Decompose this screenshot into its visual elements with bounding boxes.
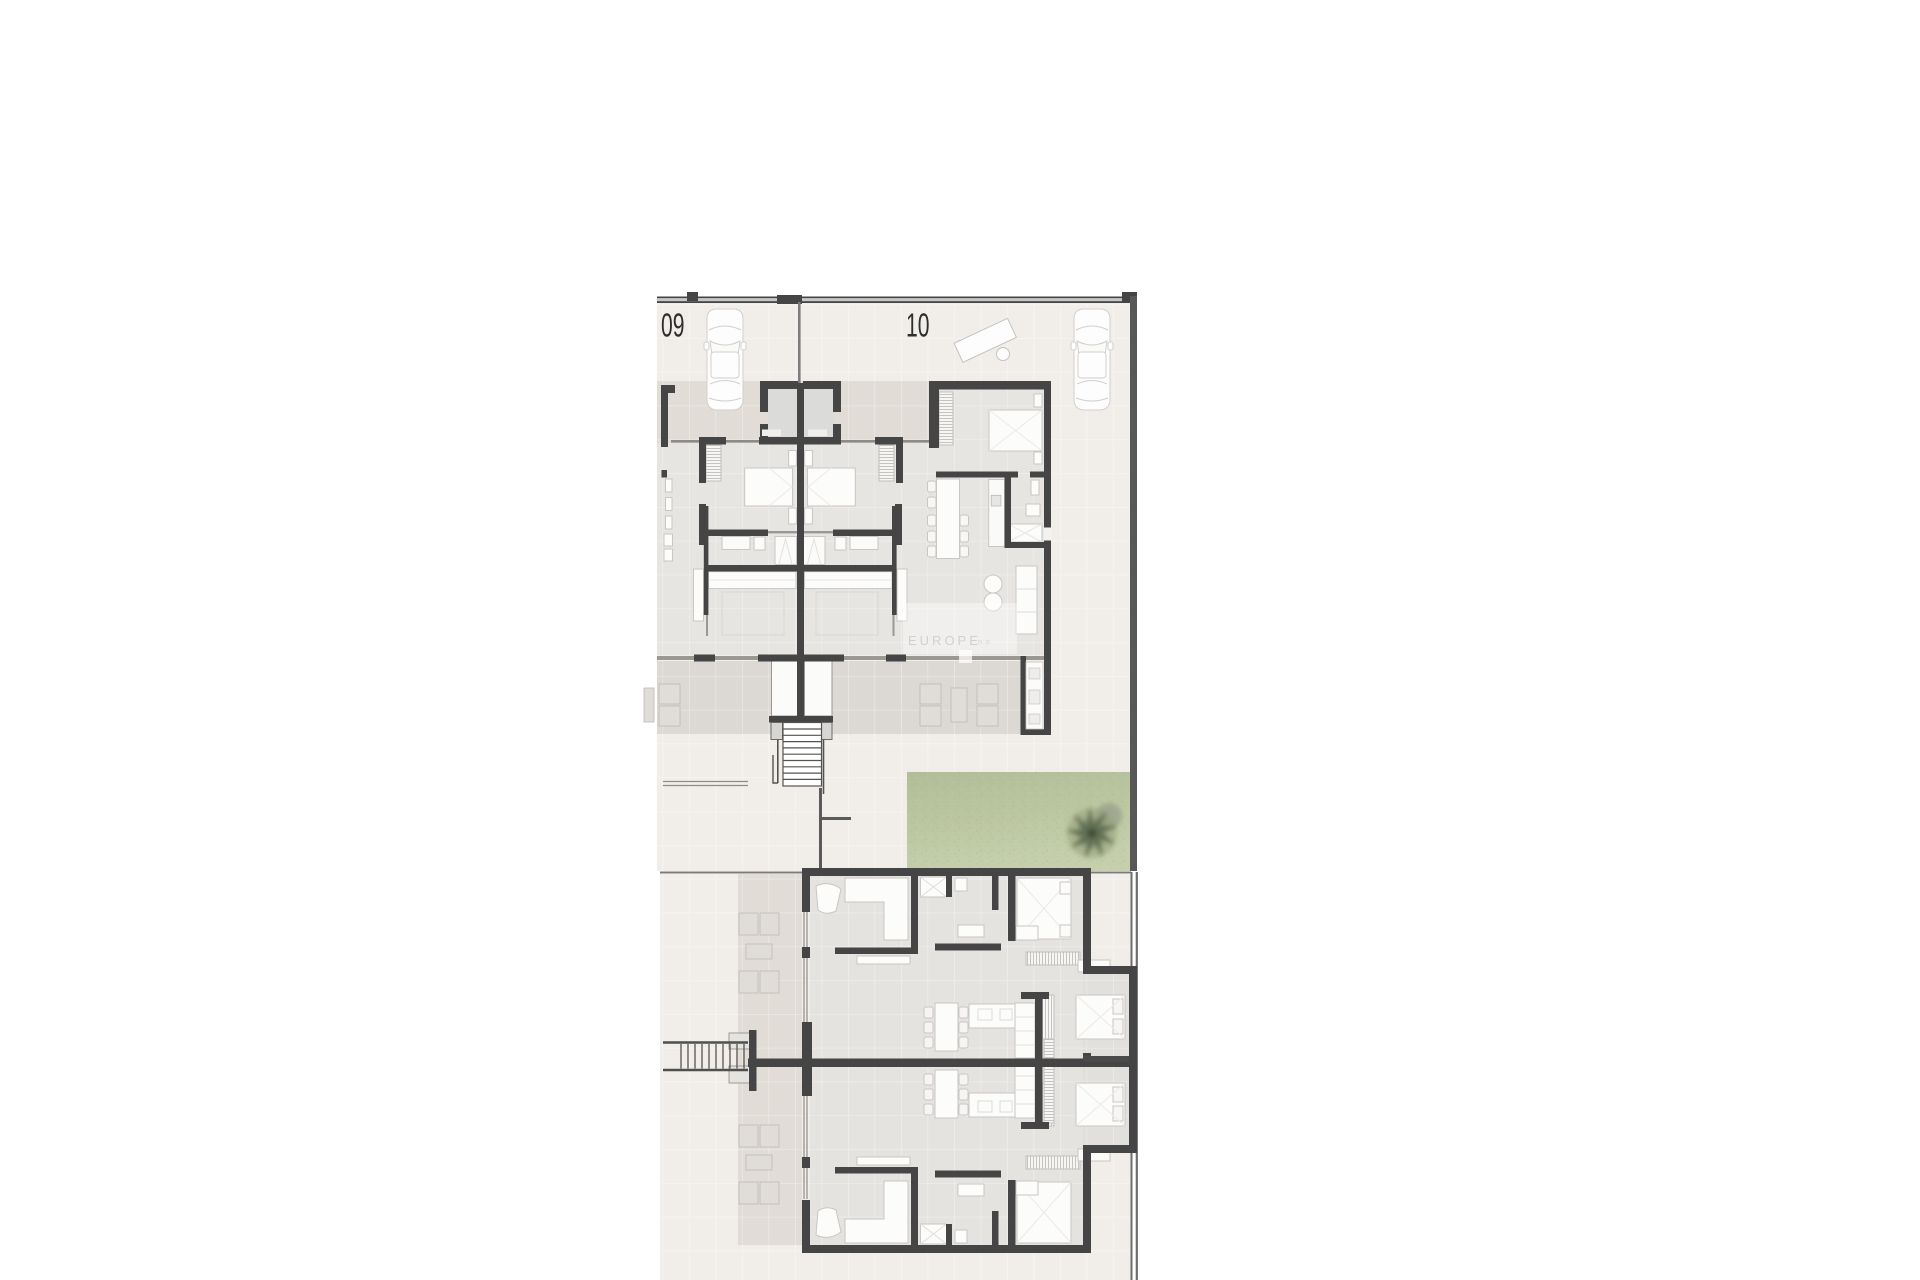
- svg-text:09: 09: [661, 307, 684, 344]
- svg-text:10: 10: [906, 307, 929, 344]
- svg-text:EUROPE: EUROPE: [908, 633, 981, 648]
- svg-text:n o: n o: [978, 639, 991, 646]
